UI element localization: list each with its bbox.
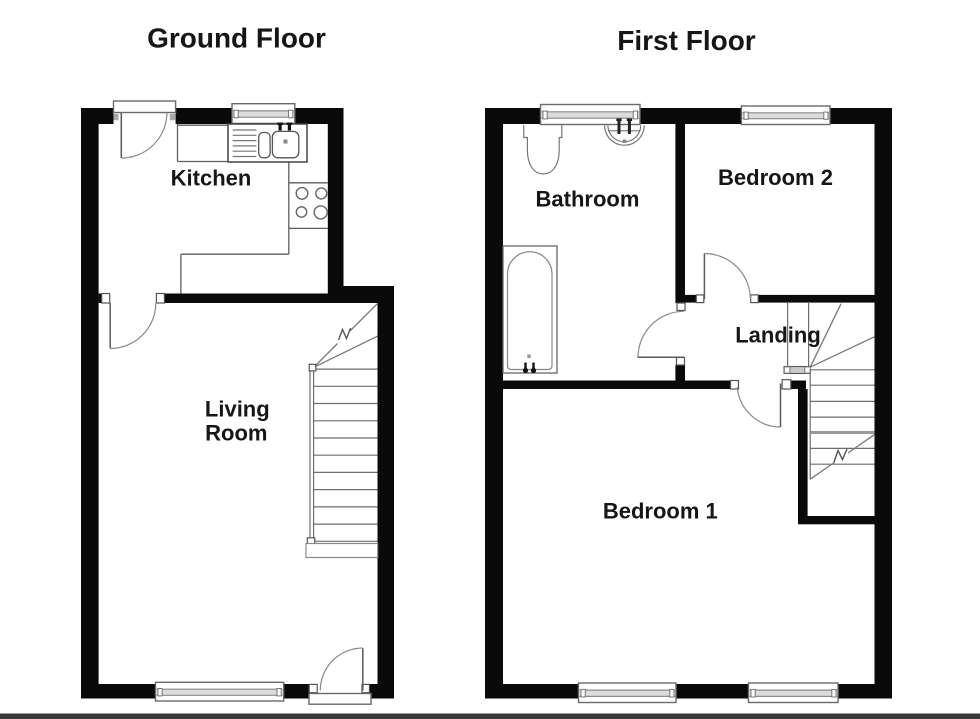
svg-text:Bedroom 2: Bedroom 2: [718, 165, 833, 190]
svg-text:Ground Floor: Ground Floor: [147, 23, 326, 54]
svg-text:Room: Room: [205, 421, 267, 446]
svg-text:Living: Living: [205, 397, 270, 422]
svg-text:Kitchen: Kitchen: [171, 166, 252, 191]
svg-text:Landing: Landing: [735, 323, 821, 348]
svg-text:First Floor: First Floor: [617, 25, 756, 56]
svg-text:Bathroom: Bathroom: [536, 187, 640, 212]
svg-text:Bedroom 1: Bedroom 1: [603, 499, 718, 524]
